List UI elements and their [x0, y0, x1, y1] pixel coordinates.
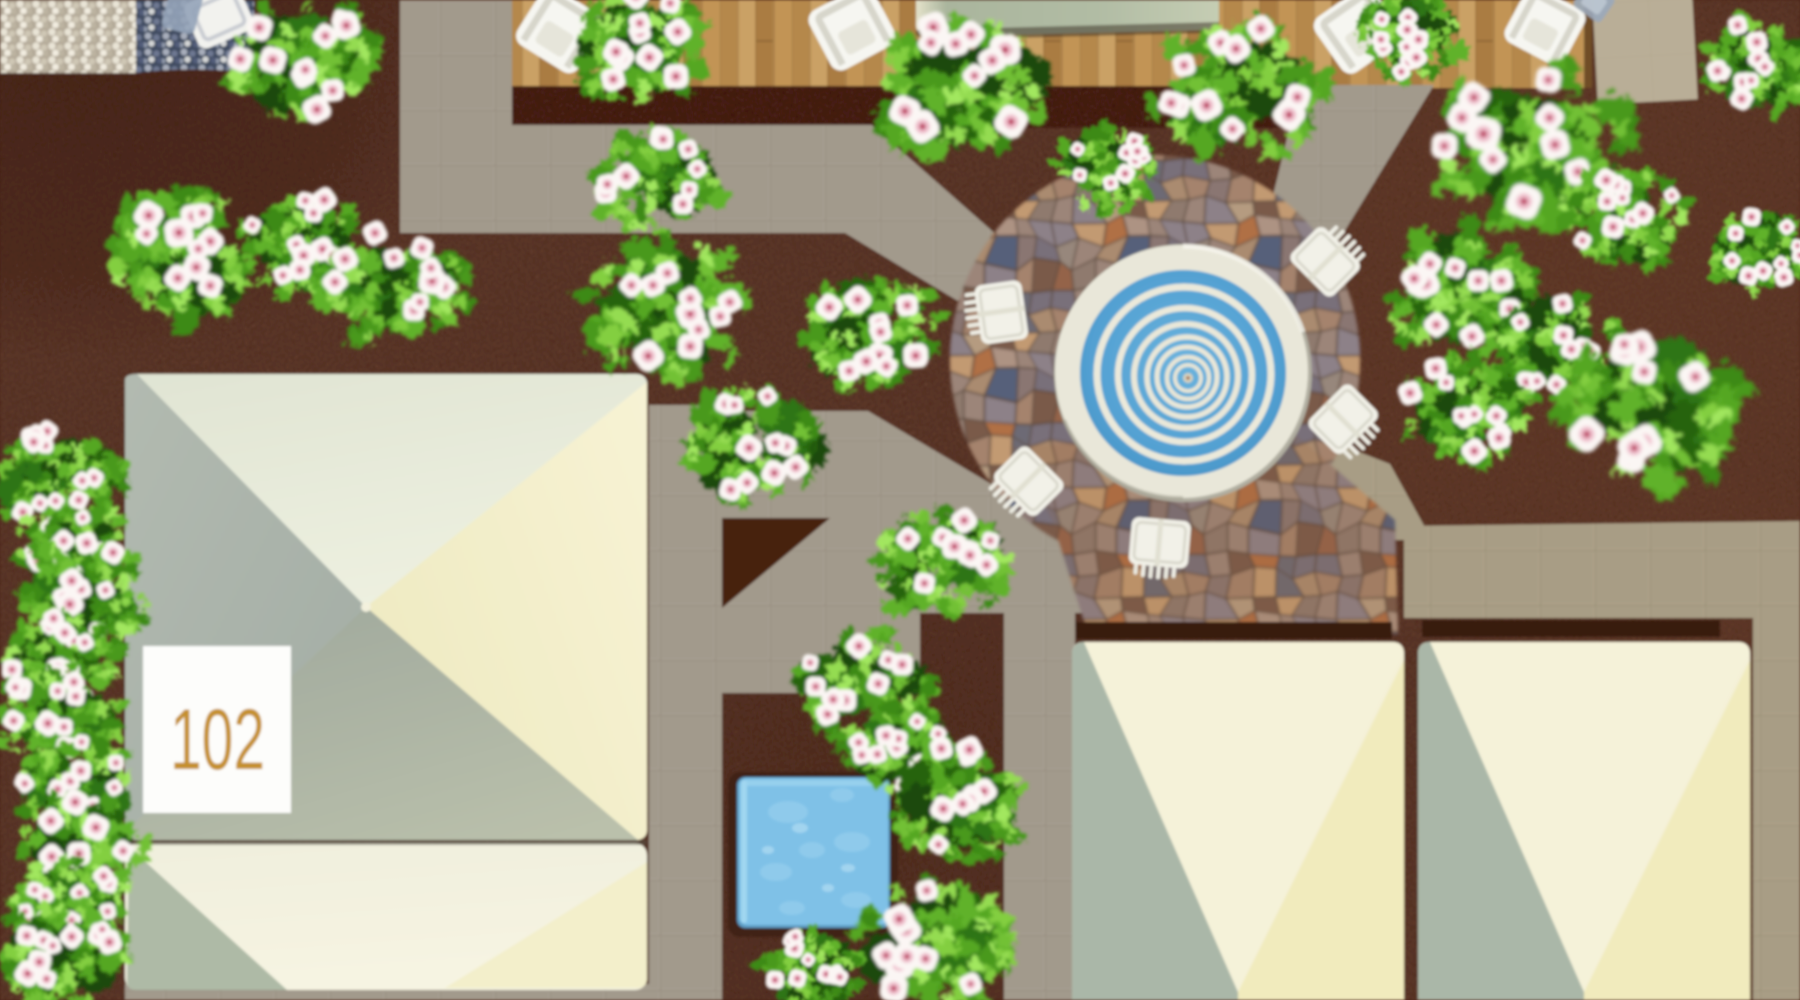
svg-text:102: 102: [170, 692, 265, 788]
